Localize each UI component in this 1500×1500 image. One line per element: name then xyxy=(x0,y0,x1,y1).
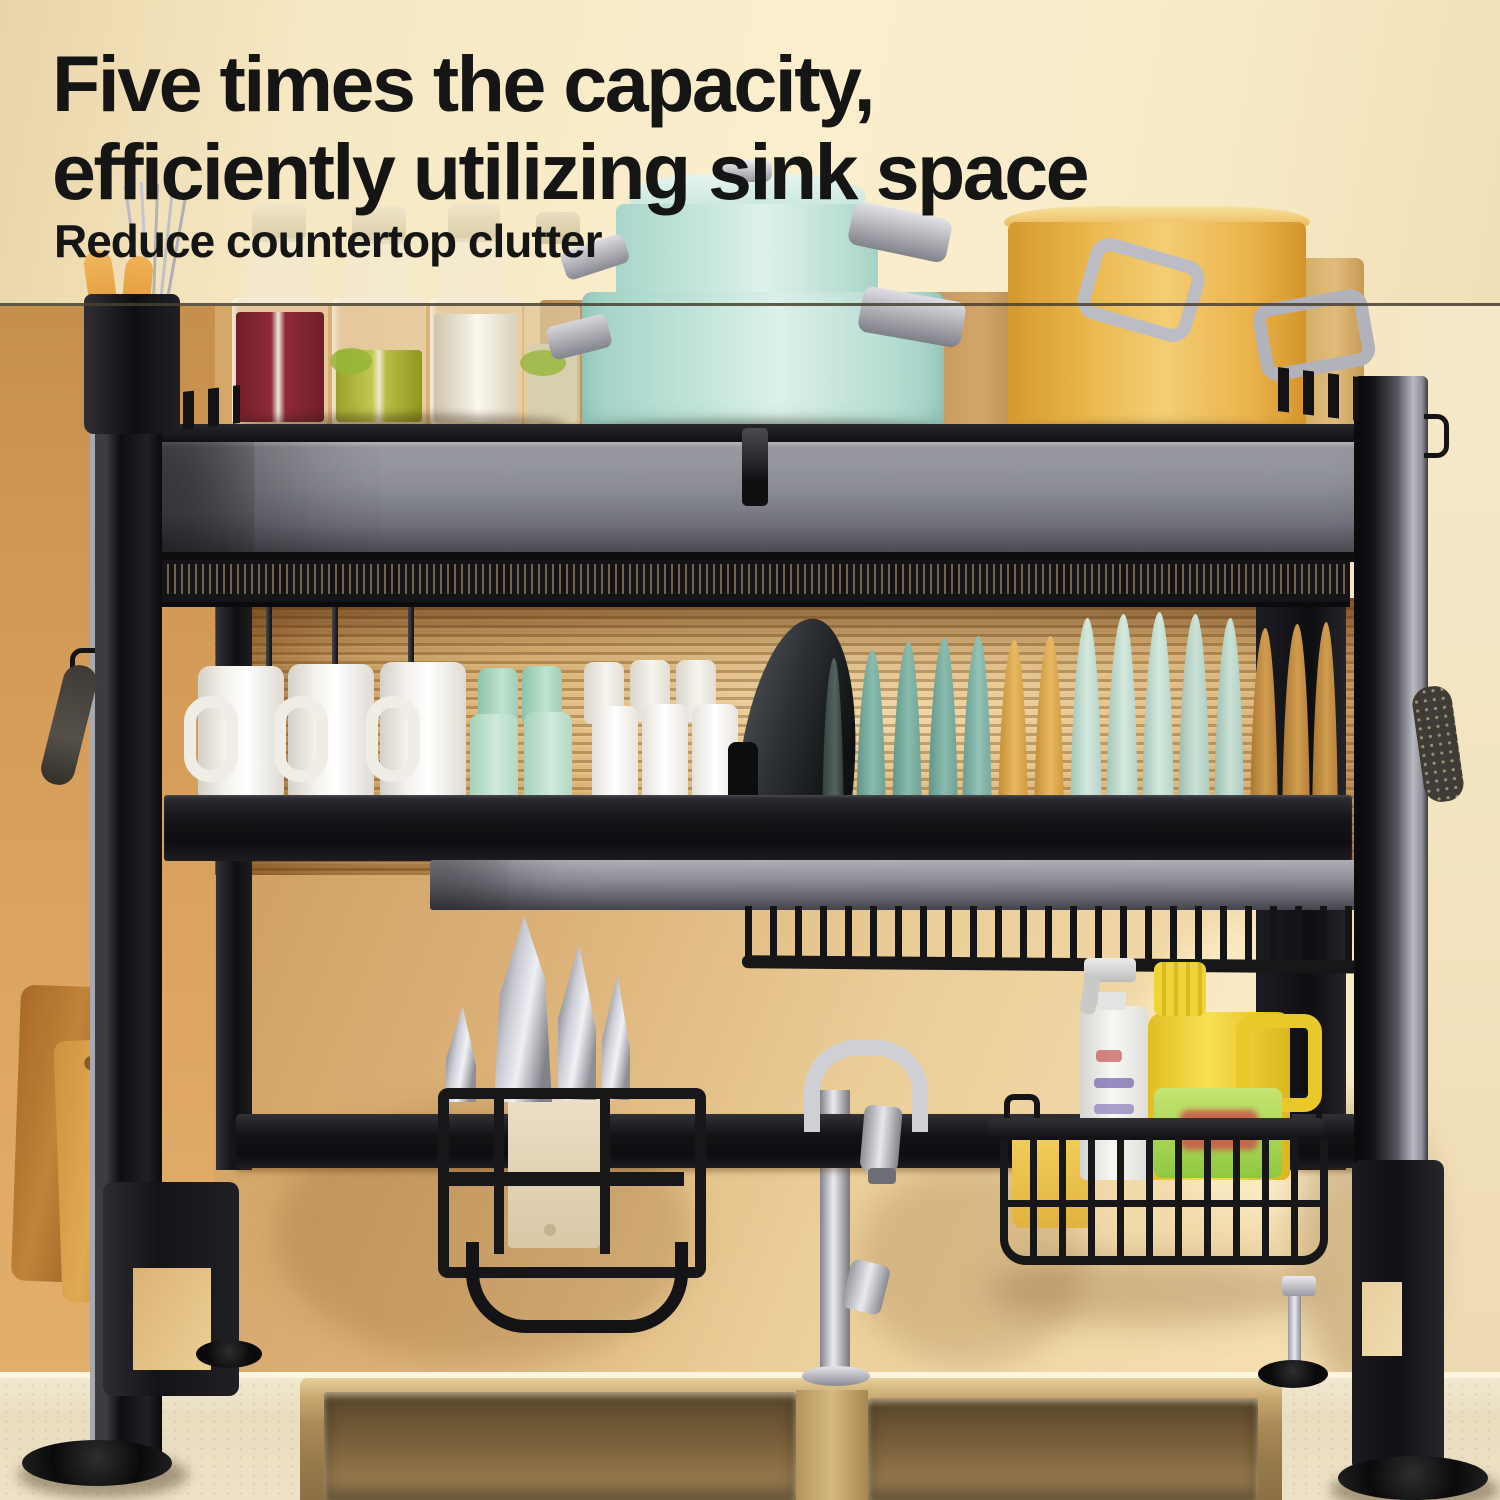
mug xyxy=(288,664,374,800)
tier2-tray-front xyxy=(164,795,1352,861)
soap-dispenser-head xyxy=(1282,1276,1316,1296)
leg-frame-cutout xyxy=(1362,1282,1402,1356)
suction-foot xyxy=(22,1440,172,1486)
knife-holder-wire-h xyxy=(438,1172,684,1186)
plate-rack-silver-bar xyxy=(430,860,1392,910)
spray-neck xyxy=(1098,992,1126,1010)
basket-rim xyxy=(988,1118,1324,1140)
mug-handle xyxy=(184,696,238,782)
shelf-clip xyxy=(742,428,768,506)
herb-sprig xyxy=(330,348,372,374)
suction-foot xyxy=(196,1340,262,1368)
suction-foot xyxy=(1338,1456,1488,1500)
spray-label-dot xyxy=(1096,1050,1122,1062)
pot-lid-knob xyxy=(728,742,758,802)
mug xyxy=(198,666,284,800)
utensil-cup xyxy=(84,294,180,434)
knife-holder-loop xyxy=(466,1242,688,1333)
spray-label-text xyxy=(1094,1104,1134,1114)
basket-wall-shadow xyxy=(985,1255,1315,1325)
leg-frame-right xyxy=(1352,1160,1444,1472)
divider-line xyxy=(0,303,1500,306)
white-bowl xyxy=(592,706,638,800)
mesh-strip xyxy=(160,560,1350,607)
sink-divider xyxy=(796,1390,868,1500)
detergent-cap xyxy=(1154,962,1206,1016)
green-bowl xyxy=(524,712,572,800)
basket-body xyxy=(1000,1138,1328,1265)
mug-handle xyxy=(274,696,328,782)
red-beans xyxy=(236,312,324,422)
mesh-texture xyxy=(160,564,1350,594)
mug-handle xyxy=(366,696,420,782)
basket-wire-horizontal xyxy=(1008,1200,1320,1207)
sink-basin-right xyxy=(868,1398,1258,1500)
headline-line1: Five times the capacity, xyxy=(52,44,873,123)
headline-line2: efficiently utilizing sink space xyxy=(52,132,1087,211)
faucet-head xyxy=(859,1104,903,1175)
subheadline: Reduce countertop clutter xyxy=(54,214,602,268)
green-bowl xyxy=(470,714,518,800)
mug xyxy=(380,662,466,800)
white-beans xyxy=(434,314,518,422)
faucet-spout-tip xyxy=(868,1168,896,1184)
product-photo-dish-rack: Five times the capacity, efficiently uti… xyxy=(0,0,1500,1500)
sink-basin-left xyxy=(324,1392,796,1500)
white-bowl xyxy=(642,704,688,800)
spice-jar xyxy=(232,298,328,426)
side-hook-right xyxy=(1424,414,1449,458)
mint-pot-upper xyxy=(616,204,878,304)
suction-foot xyxy=(1258,1360,1328,1388)
faucet-base xyxy=(802,1366,870,1386)
spice-jar xyxy=(430,298,522,426)
spray-label-text xyxy=(1094,1078,1134,1088)
